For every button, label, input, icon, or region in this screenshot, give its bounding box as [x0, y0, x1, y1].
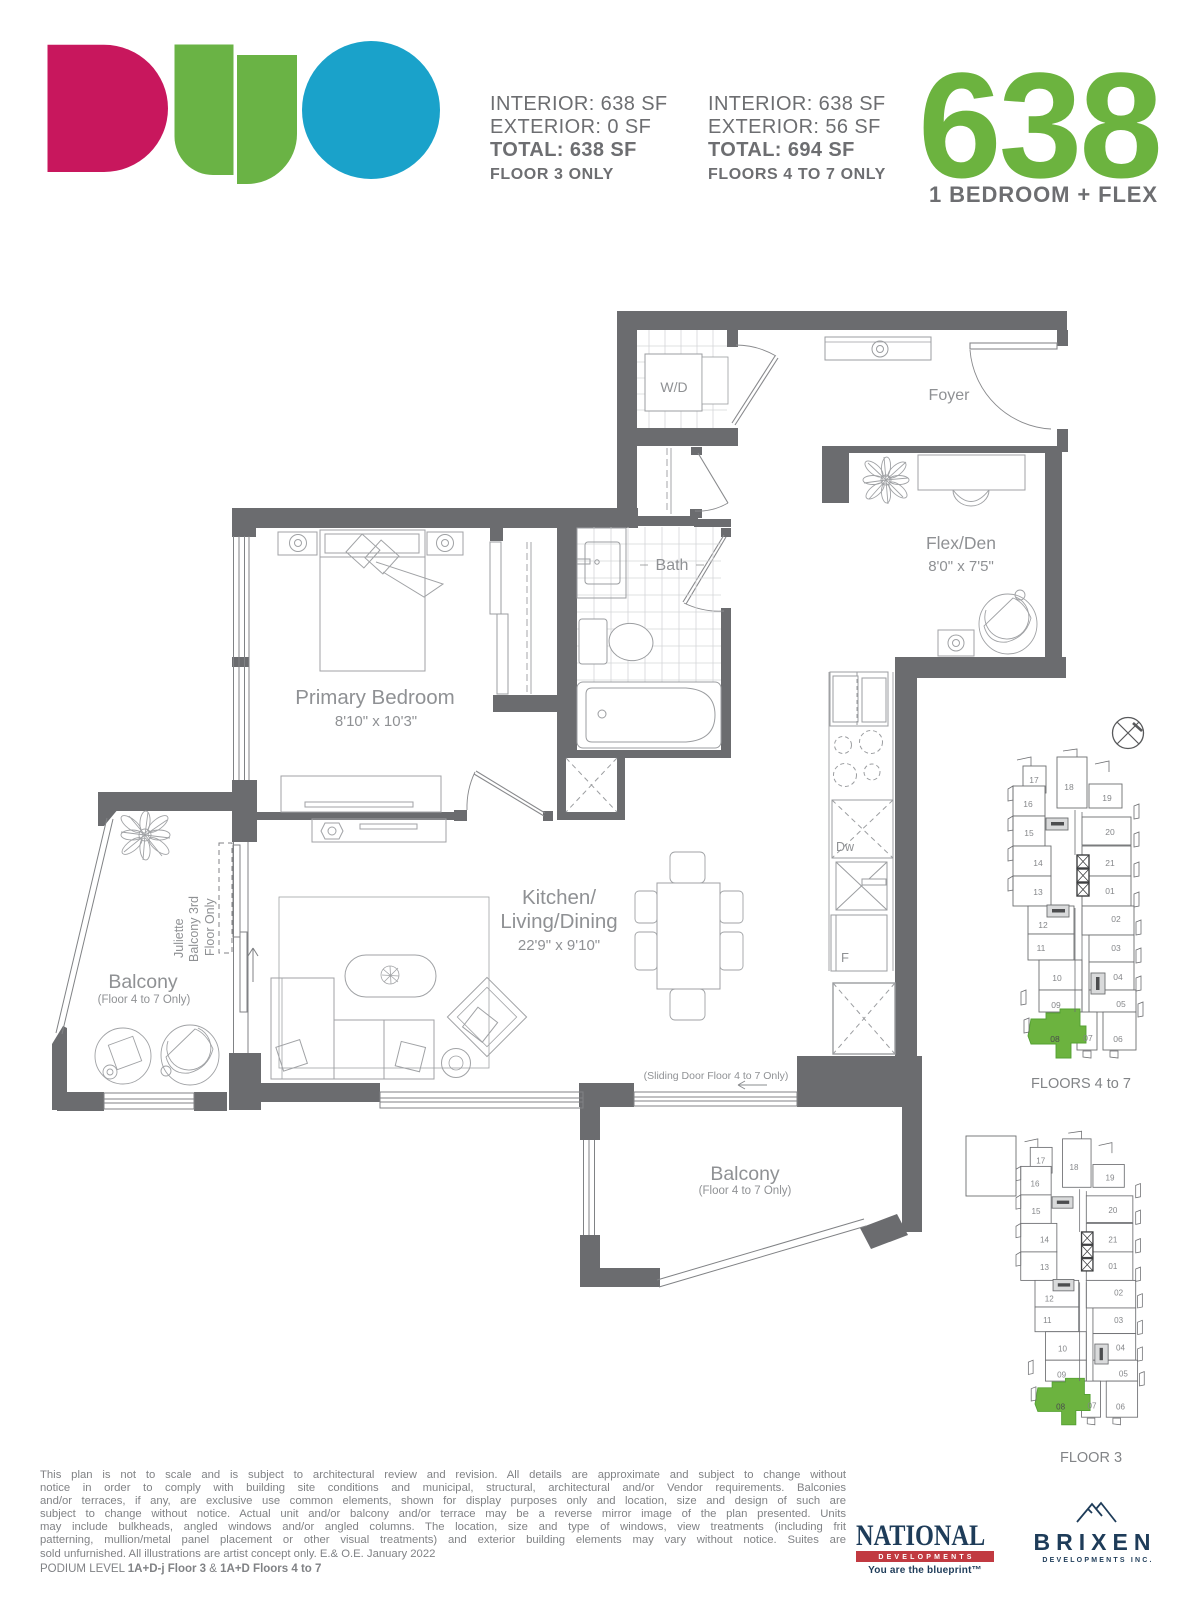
svg-text:02: 02 — [1111, 914, 1121, 924]
svg-text:12: 12 — [1038, 920, 1048, 930]
svg-text:20: 20 — [1105, 827, 1115, 837]
svg-text:W/D: W/D — [660, 379, 687, 395]
svg-text:Bath: Bath — [656, 557, 689, 574]
svg-text:Primary Bedroom: Primary Bedroom — [295, 686, 455, 709]
svg-text:08: 08 — [1050, 1034, 1060, 1044]
svg-text:07: 07 — [1083, 1033, 1093, 1043]
svg-text:17: 17 — [1029, 775, 1039, 785]
svg-text:Balcony: Balcony — [108, 971, 178, 993]
svg-text:11: 11 — [1037, 943, 1046, 953]
svg-text:Juliette: Juliette — [172, 918, 186, 958]
svg-text:13: 13 — [1033, 887, 1043, 897]
svg-text:16: 16 — [1023, 799, 1033, 809]
svg-text:Dw: Dw — [836, 840, 855, 854]
svg-text:8'10" x 10'3": 8'10" x 10'3" — [335, 713, 417, 730]
svg-text:06: 06 — [1113, 1034, 1123, 1044]
svg-text:(Sliding Door Floor 4 to 7 Onl: (Sliding Door Floor 4 to 7 Only) — [644, 1070, 789, 1082]
svg-text:F: F — [841, 950, 849, 965]
svg-text:19: 19 — [1102, 793, 1112, 803]
svg-text:01: 01 — [1105, 886, 1115, 896]
svg-text:Foyer: Foyer — [929, 387, 971, 404]
svg-text:Balcony: Balcony — [710, 1163, 780, 1185]
svg-text:Flex/Den: Flex/Den — [926, 533, 996, 553]
svg-text:FLOOR 3: FLOOR 3 — [1060, 1450, 1122, 1466]
svg-text:Kitchen/: Kitchen/ — [522, 886, 596, 909]
svg-text:(Floor 4 to 7 Only): (Floor 4 to 7 Only) — [98, 994, 191, 1006]
svg-text:04: 04 — [1113, 972, 1123, 982]
svg-text:Floor Only: Floor Only — [203, 898, 217, 956]
svg-text:Living/Dining: Living/Dining — [500, 910, 617, 933]
svg-text:FLOORS 4 to 7: FLOORS 4 to 7 — [1031, 1076, 1131, 1092]
svg-text:8'0" x 7'5": 8'0" x 7'5" — [928, 558, 994, 575]
svg-text:05: 05 — [1116, 999, 1126, 1009]
svg-text:14: 14 — [1033, 858, 1043, 868]
svg-text:Balcony 3rd: Balcony 3rd — [187, 896, 201, 962]
svg-text:15: 15 — [1024, 828, 1034, 838]
svg-text:18: 18 — [1064, 782, 1074, 792]
svg-text:22'9" x 9'10": 22'9" x 9'10" — [518, 937, 600, 954]
svg-text:10: 10 — [1052, 973, 1062, 983]
svg-text:09: 09 — [1051, 1000, 1061, 1010]
svg-text:21: 21 — [1105, 858, 1115, 868]
svg-text:03: 03 — [1111, 943, 1121, 953]
svg-text:(Floor 4 to 7 Only): (Floor 4 to 7 Only) — [699, 1185, 792, 1197]
